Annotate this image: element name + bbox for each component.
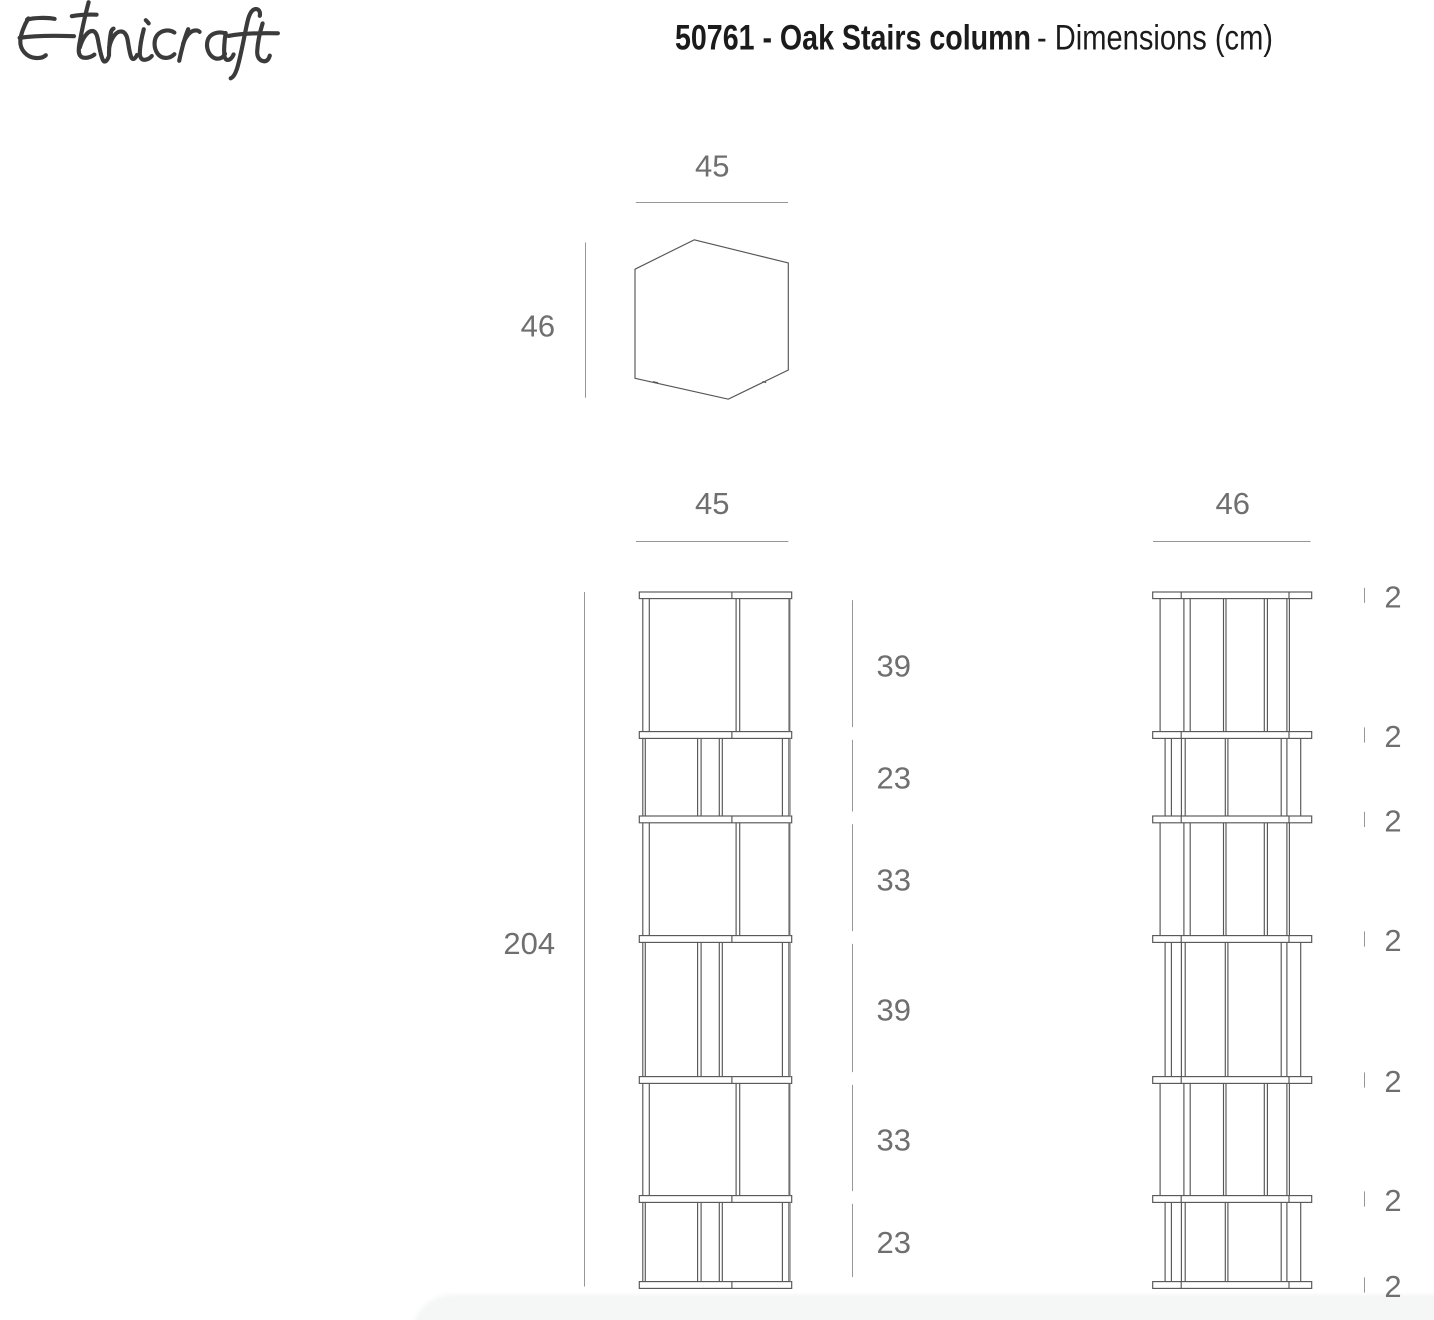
- svg-text:2: 2: [1384, 804, 1401, 839]
- svg-text:39: 39: [877, 993, 911, 1028]
- svg-text:- Dimensions (cm): - Dimensions (cm): [1037, 18, 1273, 58]
- svg-text:39: 39: [877, 648, 911, 683]
- svg-text:33: 33: [877, 1123, 911, 1158]
- svg-text:204: 204: [503, 926, 555, 961]
- svg-text:2: 2: [1384, 923, 1401, 958]
- svg-text:23: 23: [877, 1225, 911, 1260]
- svg-text:50761 - Oak Stairs column: 50761 - Oak Stairs column: [675, 18, 1031, 58]
- svg-text:23: 23: [877, 760, 911, 795]
- svg-text:2: 2: [1384, 1183, 1401, 1218]
- svg-text:45: 45: [695, 486, 729, 521]
- svg-text:33: 33: [877, 862, 911, 897]
- svg-text:2: 2: [1384, 1269, 1401, 1304]
- svg-text:45: 45: [695, 149, 729, 184]
- svg-text:2: 2: [1384, 1064, 1401, 1099]
- svg-text:46: 46: [1216, 486, 1250, 521]
- svg-text:2: 2: [1384, 580, 1401, 615]
- svg-text:2: 2: [1384, 719, 1401, 754]
- svg-text:46: 46: [521, 309, 555, 344]
